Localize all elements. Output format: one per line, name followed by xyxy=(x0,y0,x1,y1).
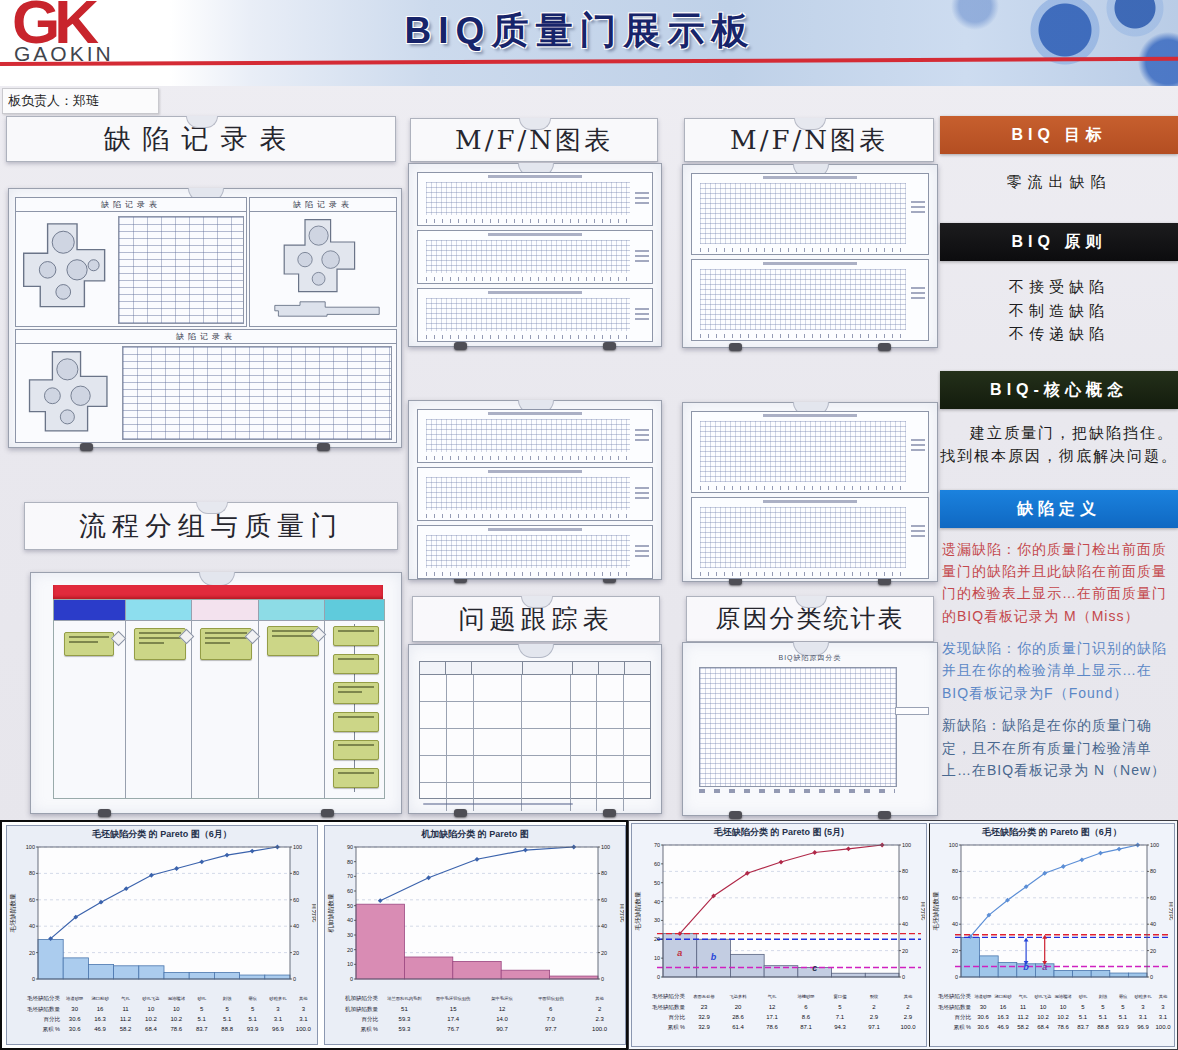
defect-def-new: 新缺陷：缺陷是在你的质量门确定，且不在所有质量门检验清单上…在BIQ看板记录为 … xyxy=(942,714,1176,781)
pareto-table-row: 毛坯缺陷数量301611101055533 xyxy=(8,1004,316,1014)
pareto-table-row: 百分比59.317.414.07.02.3 xyxy=(326,1014,624,1024)
pareto-table-row: 毛坯缺陷数量2320126522 xyxy=(633,1002,925,1012)
pareto-table-row: 毛坯缺陷分类表面无处修飞边多料气孔油槽砂眼窗口偏裂纹其他 xyxy=(633,990,925,1002)
svg-text:40: 40 xyxy=(347,917,353,923)
svg-text:100: 100 xyxy=(293,844,302,850)
svg-text:20: 20 xyxy=(601,950,607,956)
record-grid xyxy=(118,216,244,324)
pareto-table-row: 百分比30.616.311.210.210.25.15.15.13.13.1 xyxy=(931,1012,1173,1022)
mfn-sheet-1 xyxy=(408,163,662,347)
svg-text:60: 60 xyxy=(952,895,958,901)
pareto-table-row: 毛坯缺陷分类油道砂眼浇口粘砂气孔砂孔飞边漏油嘴堵砂孔刻蚀磨痕砂粒多孔其他 xyxy=(8,992,316,1004)
cause-chart-grid xyxy=(699,667,897,787)
svg-text:20: 20 xyxy=(952,948,958,954)
pareto-title: 毛坯缺陷分类 的 Pareto 图 (5月) xyxy=(633,825,925,839)
svg-text:20: 20 xyxy=(29,950,35,956)
svg-text:60: 60 xyxy=(1150,895,1156,901)
info-panel: BIQ 目标 零流出缺陷 BIQ 原则 不接受缺陷 不制造缺陷 不传递缺陷 BI… xyxy=(940,116,1178,781)
svg-text:0: 0 xyxy=(955,974,958,980)
svg-text:40: 40 xyxy=(952,921,958,927)
svg-text:40: 40 xyxy=(601,923,607,929)
pareto-chart-3: 毛坯缺陷分类 的 Pareto 图 (5月)abc010203040506070… xyxy=(631,823,927,1047)
mfn-mini-chart xyxy=(417,467,653,521)
pareto-strip-right: 毛坯缺陷分类 的 Pareto 图 (5月)abc010203040506070… xyxy=(628,820,1178,1050)
page-title: BIQ质量门展示板 xyxy=(300,6,860,56)
svg-text:毛坯缺陷数量: 毛坯缺陷数量 xyxy=(9,893,17,933)
pareto-title: 毛坯缺陷分类 的 Pareto 图（6月） xyxy=(931,825,1173,839)
flow-title-bar xyxy=(53,585,383,599)
svg-text:50: 50 xyxy=(347,903,353,909)
pareto-data-table: 机加缺陷分类法兰面和孔内毛刺面中毛坯切痕划伤架中毛坯痕平面切痕划伤其他机加缺陷数… xyxy=(326,992,624,1034)
section-title-mfn-1: M/F/N图表 xyxy=(410,118,658,162)
biq-principle-line: 不传递缺陷 xyxy=(940,322,1178,345)
svg-text:30: 30 xyxy=(654,917,660,923)
board-owner-label: 板负责人：郑琏 xyxy=(2,88,159,114)
svg-text:40: 40 xyxy=(654,899,660,905)
part-drawing xyxy=(24,350,116,438)
svg-text:60: 60 xyxy=(654,861,660,867)
pareto-table-row: 累积 %59.376.790.797.7100.0 xyxy=(326,1024,624,1034)
svg-text:100: 100 xyxy=(601,844,610,850)
pareto-data-table: 毛坯缺陷分类油道砂眼浇口粘砂气孔砂孔飞边漏油嘴堵砂孔刻蚀磨痕砂粒多孔其他毛坯缺陷… xyxy=(931,990,1173,1032)
svg-text:10: 10 xyxy=(347,961,353,967)
pareto-table-row: 百分比30.616.311.210.210.25.15.15.13.13.1 xyxy=(8,1014,316,1024)
svg-text:0: 0 xyxy=(350,976,353,982)
clip xyxy=(98,809,111,817)
pareto-title: 毛坯缺陷分类 的 Pareto 图（6月） xyxy=(8,827,316,841)
svg-text:40: 40 xyxy=(1150,921,1156,927)
pareto-data-table: 毛坯缺陷分类表面无处修飞边多料气孔油槽砂眼窗口偏裂纹其他毛坯缺陷数量232012… xyxy=(633,990,925,1032)
pareto-table-row: 机加缺陷数量51151262 xyxy=(326,1004,624,1014)
svg-text:百分比: 百分比 xyxy=(1169,901,1173,921)
section-title-problem: 问题跟踪表 xyxy=(412,596,660,642)
clip xyxy=(878,811,891,819)
mfn-mini-chart xyxy=(417,525,653,579)
svg-text:100: 100 xyxy=(949,842,958,848)
svg-text:40: 40 xyxy=(29,923,35,929)
svg-text:100: 100 xyxy=(1150,842,1159,848)
svg-text:0: 0 xyxy=(657,974,660,980)
cause-statistics-sheet: BIQ缺陷原因分类 xyxy=(682,642,938,816)
clip xyxy=(729,343,742,351)
svg-text:百分比: 百分比 xyxy=(620,903,624,923)
svg-text:c: c xyxy=(812,963,817,973)
pareto-chart-4: 毛坯缺陷分类 的 Pareto 图（6月）ba02040608010002040… xyxy=(929,823,1175,1047)
flow-chart-sheet xyxy=(30,572,402,814)
svg-text:a: a xyxy=(677,948,682,958)
clip xyxy=(80,443,93,451)
svg-text:0: 0 xyxy=(902,974,905,980)
biq-principle-line: 不制造缺陷 xyxy=(940,299,1178,322)
svg-text:90: 90 xyxy=(347,844,353,850)
svg-text:60: 60 xyxy=(601,897,607,903)
svg-text:80: 80 xyxy=(601,870,607,876)
svg-text:a: a xyxy=(1042,962,1047,972)
pareto-table-row: 机加缺陷分类法兰面和孔内毛刺面中毛坯切痕划伤架中毛坯痕平面切痕划伤其他 xyxy=(326,992,624,1004)
tracking-table xyxy=(419,661,651,799)
svg-text:80: 80 xyxy=(1150,868,1156,874)
svg-text:80: 80 xyxy=(347,859,353,865)
svg-text:0: 0 xyxy=(32,976,35,982)
clip xyxy=(729,811,742,819)
mfn-mini-chart xyxy=(691,497,929,579)
svg-text:10: 10 xyxy=(654,955,660,961)
svg-text:60: 60 xyxy=(902,895,908,901)
part-drawing xyxy=(278,218,364,298)
cause-chart-legend xyxy=(895,707,929,715)
svg-text:60: 60 xyxy=(293,897,299,903)
pareto-plot: ba020406080100020406080100毛坯缺陷数量百分比 xyxy=(931,839,1173,985)
defect-record-subform-2: 缺陷记录表 xyxy=(249,197,397,327)
section-title-flow: 流程分组与质量门 xyxy=(24,502,398,550)
pareto-plot: abc010203040506070020406080100毛坯缺陷数量百分比 xyxy=(633,839,925,985)
part-side-view xyxy=(272,300,382,318)
biq-core-line: 找到根本原因，彻底解决问题。 xyxy=(940,444,1178,467)
pareto-strip-left: 毛坯缺陷分类 的 Pareto 图（6月）0204060801000204060… xyxy=(0,820,628,1050)
footnote-line xyxy=(423,803,573,805)
svg-text:b: b xyxy=(1023,962,1029,972)
svg-text:100: 100 xyxy=(26,844,35,850)
pareto-title: 机加缺陷分类 的 Pareto 图 xyxy=(326,827,624,841)
svg-text:b: b xyxy=(711,952,717,962)
mfn-mini-chart xyxy=(691,173,929,255)
mfn-sheet-2 xyxy=(408,400,662,580)
svg-text:80: 80 xyxy=(29,870,35,876)
defect-record-sheet: 缺陷记录表 缺陷记录表 缺陷记录表 xyxy=(8,188,402,448)
svg-text:0: 0 xyxy=(1150,974,1153,980)
svg-text:50: 50 xyxy=(654,880,660,886)
record-grid xyxy=(122,346,392,440)
clip xyxy=(454,342,467,350)
svg-text:20: 20 xyxy=(347,947,353,953)
flow-columns xyxy=(53,599,385,799)
svg-text:20: 20 xyxy=(293,950,299,956)
defect-def-found: 发现缺陷：你的质量门识别的缺陷并且在你的检验清单上显示…在BIQ看板记录为F（F… xyxy=(942,637,1176,704)
svg-text:0: 0 xyxy=(293,976,296,982)
defect-record-subform-3: 缺陷记录表 xyxy=(15,329,397,443)
svg-text:百分比: 百分比 xyxy=(312,903,316,923)
svg-text:70: 70 xyxy=(347,873,353,879)
board-header: GK GAOKIN BIQ质量门展示板 xyxy=(0,0,1178,86)
svg-text:20: 20 xyxy=(1150,948,1156,954)
display-board: GK GAOKIN BIQ质量门展示板 板负责人：郑琏 缺陷记录表 缺陷记录表 … xyxy=(0,0,1178,1050)
section-title-mfn-2: M/F/N图表 xyxy=(684,118,934,162)
svg-text:40: 40 xyxy=(902,921,908,927)
part-drawing xyxy=(20,220,112,316)
svg-text:100: 100 xyxy=(902,842,911,848)
svg-text:40: 40 xyxy=(293,923,299,929)
biq-goal-text: 零流出缺陷 xyxy=(940,170,1178,193)
svg-text:30: 30 xyxy=(347,932,353,938)
problem-tracking-sheet xyxy=(408,644,662,814)
mfn-sheet-3 xyxy=(682,164,938,348)
biq-goal-banner: BIQ 目标 xyxy=(940,116,1178,154)
svg-text:机加缺陷数量: 机加缺陷数量 xyxy=(327,893,335,933)
svg-text:80: 80 xyxy=(952,868,958,874)
section-title-cause: 原因分类统计表 xyxy=(686,596,934,642)
clip xyxy=(603,342,616,350)
mfn-sheet-4 xyxy=(682,402,938,582)
svg-text:百分比: 百分比 xyxy=(921,901,925,921)
mfn-mini-chart xyxy=(691,259,929,341)
section-title-defect-record: 缺陷记录表 xyxy=(6,116,396,162)
biq-core-line: 建立质量门，把缺陷挡住。 xyxy=(940,421,1178,444)
pareto-chart-1: 毛坯缺陷分类 的 Pareto 图（6月）0204060801000204060… xyxy=(6,825,318,1045)
mfn-mini-chart xyxy=(417,409,653,463)
svg-text:20: 20 xyxy=(654,936,660,942)
cause-chart-title: BIQ缺陷原因分类 xyxy=(683,653,937,663)
company-logo: GK GAOKIN xyxy=(12,0,93,57)
pareto-table-row: 累积 %30.646.958.268.478.683.788.893.996.9… xyxy=(8,1024,316,1034)
clip xyxy=(317,443,330,451)
svg-text:80: 80 xyxy=(902,868,908,874)
pareto-chart-2: 机加缺陷分类 的 Pareto 图01020304050607080900204… xyxy=(324,825,626,1045)
defect-def-miss: 遗漏缺陷：你的质量门检出前面质量门的缺陷并且此缺陷在前面质量门的检验表上显示…在… xyxy=(942,538,1176,628)
svg-text:60: 60 xyxy=(347,888,353,894)
clip xyxy=(321,809,334,817)
header-red-line xyxy=(0,57,1178,66)
svg-text:70: 70 xyxy=(654,842,660,848)
svg-text:60: 60 xyxy=(29,897,35,903)
svg-text:毛坯缺陷数量: 毛坯缺陷数量 xyxy=(634,891,642,931)
mfn-mini-chart xyxy=(417,172,653,226)
mfn-mini-chart xyxy=(417,230,653,284)
pareto-table-row: 毛坯缺陷分类油道砂眼浇口粘砂气孔砂孔飞边漏油嘴堵砂孔刻蚀磨痕砂粒多孔其他 xyxy=(931,990,1173,1002)
cause-x-labels xyxy=(699,789,895,793)
pareto-plot: 0102030405060708090020406080100机加缺陷数量百分比 xyxy=(326,841,624,987)
pareto-table-row: 百分比32.928.617.18.67.12.92.9 xyxy=(633,1012,925,1022)
biq-core-banner: BIQ-核心概念 xyxy=(940,371,1178,409)
pareto-table-row: 毛坯缺陷数量301611101055533 xyxy=(931,1002,1173,1012)
svg-text:20: 20 xyxy=(902,948,908,954)
pareto-data-table: 毛坯缺陷分类油道砂眼浇口粘砂气孔砂孔飞边漏油嘴堵砂孔刻蚀磨痕砂粒多孔其他毛坯缺陷… xyxy=(8,992,316,1034)
pareto-table-row: 累积 %32.961.478.687.194.397.1100.0 xyxy=(633,1022,925,1032)
svg-text:毛坯缺陷数量: 毛坯缺陷数量 xyxy=(932,891,940,931)
defect-record-subform-1: 缺陷记录表 xyxy=(15,197,247,327)
svg-text:0: 0 xyxy=(601,976,604,982)
biq-principle-line: 不接受缺陷 xyxy=(940,275,1178,298)
defect-definition-banner: 缺陷定义 xyxy=(940,490,1178,528)
biq-principle-banner: BIQ 原则 xyxy=(940,223,1178,261)
pareto-table-row: 累积 %30.646.958.268.478.683.788.893.996.9… xyxy=(931,1022,1173,1032)
mfn-mini-chart xyxy=(417,288,653,342)
mfn-mini-chart xyxy=(691,411,929,493)
svg-text:80: 80 xyxy=(293,870,299,876)
pareto-plot: 020406080100020406080100毛坯缺陷数量百分比 xyxy=(8,841,316,987)
clip xyxy=(878,343,891,351)
